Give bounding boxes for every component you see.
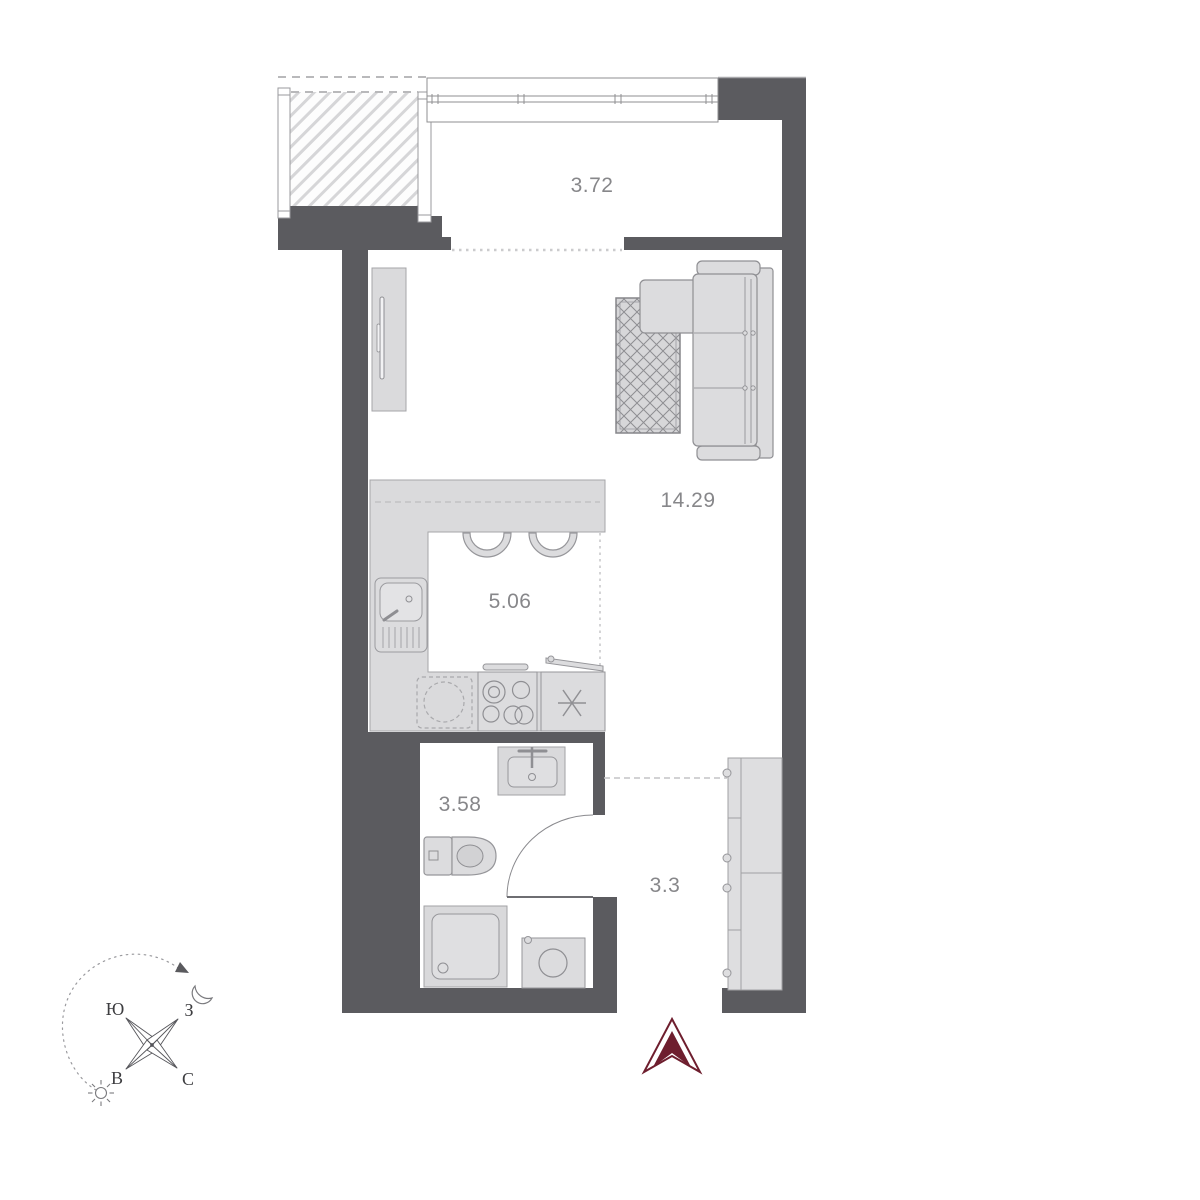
compass-label-east: В (99, 1068, 135, 1088)
floor-plan: 3.72 14.29 5.06 3.58 3.3 Ю З В С (0, 0, 1200, 1200)
washing-machine (522, 937, 585, 989)
room-area-label-kitchen: 5.06 (455, 590, 565, 614)
bathroom-sink (498, 747, 565, 795)
compass-label-south: Ю (97, 999, 133, 1019)
sofa-armrest-top (697, 261, 760, 275)
kitchen-sink (375, 578, 427, 652)
bathroom-door (507, 815, 593, 897)
entrance-arrow-icon (644, 1019, 700, 1072)
wall-loggia-divider (624, 237, 782, 250)
balcony-hatch (290, 92, 418, 206)
sofa-armrest-bottom (697, 446, 760, 460)
bar-stool (463, 533, 511, 557)
door-swing-arc (507, 815, 593, 897)
oven-handle (483, 664, 528, 670)
wall-bathroom-door-jamb (593, 897, 617, 988)
compass-label-west: З (171, 1000, 207, 1020)
wall-bathroom-right-upper (593, 743, 605, 815)
sofa-seat (693, 274, 757, 446)
sofa-chaise (640, 280, 698, 333)
wall-left-bathroom-block (342, 732, 420, 1013)
tv (380, 297, 384, 379)
wardrobe (723, 758, 782, 990)
shower (424, 906, 507, 987)
room-area-label-loggia: 3.72 (537, 174, 647, 198)
room-area-label-hallway: 3.3 (610, 874, 720, 898)
sink-bowl (380, 583, 422, 621)
fridge-door-flap (546, 658, 603, 671)
compass-label-north: С (170, 1069, 206, 1089)
sofa-side-panel (756, 268, 773, 458)
compass-star (126, 1018, 178, 1069)
toilet (424, 837, 496, 875)
wall-bottom-right (722, 988, 806, 1013)
fridge (541, 656, 605, 731)
room-area-label-living-room: 14.29 (633, 489, 743, 513)
balcony-railing-left (278, 88, 290, 218)
wall-left-upper (342, 250, 368, 732)
wall-bathroom-top (420, 732, 605, 743)
tv-stand (372, 268, 406, 411)
stove (478, 664, 537, 731)
open-balcony (278, 77, 431, 222)
wall-bottom-left (342, 988, 617, 1013)
bar-stool (529, 533, 577, 557)
window-band (427, 78, 718, 122)
room-area-label-bathroom: 3.58 (405, 793, 515, 817)
